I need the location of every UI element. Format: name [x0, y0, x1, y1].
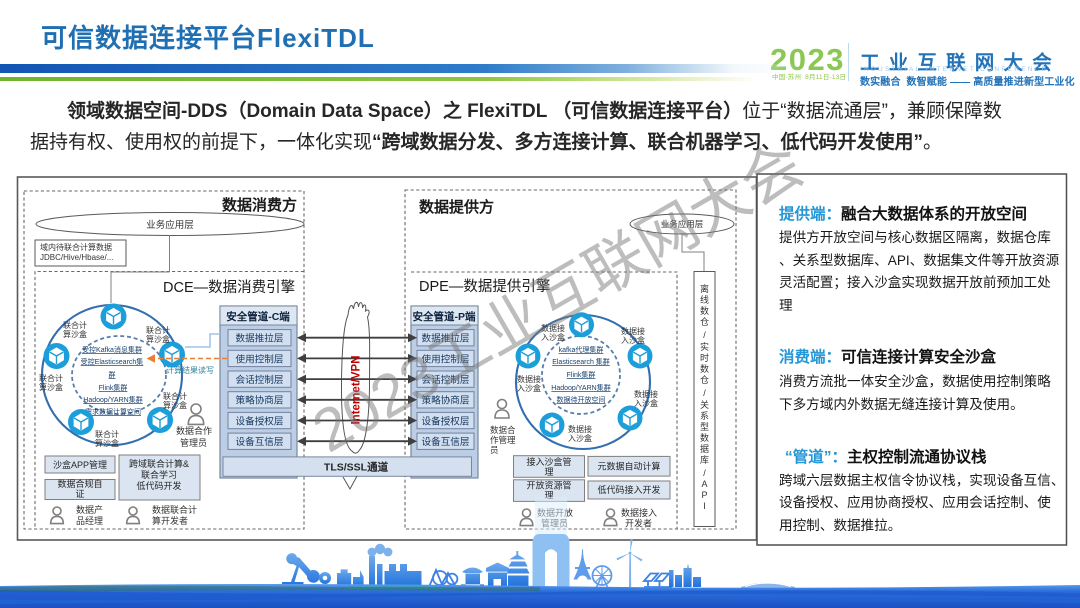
svg-text:跨域联合计算&: 跨域联合计算& [129, 458, 189, 469]
svg-text:入沙盒: 入沙盒 [568, 433, 592, 443]
svg-text:数: 数 [700, 363, 709, 374]
svg-text:数据合规自: 数据合规自 [57, 478, 102, 489]
svg-text:Elasticsearch 集群: Elasticsearch 集群 [552, 357, 610, 366]
svg-text:会话控制层: 会话控制层 [422, 374, 470, 386]
svg-text:会话控制层: 会话控制层 [236, 374, 284, 386]
svg-text:数据接: 数据接 [568, 424, 592, 434]
svg-text:使用控制层: 使用控制层 [236, 353, 284, 365]
svg-text:A: A [701, 479, 707, 489]
svg-text:线: 线 [700, 294, 709, 305]
svg-text:管理员: 管理员 [180, 437, 207, 448]
svg-text:接入沙盒管: 接入沙盒管 [526, 456, 571, 467]
svg-text:设备授权层: 设备授权层 [422, 415, 470, 427]
svg-text:数据提供方: 数据提供方 [419, 198, 494, 216]
svg-text:群: 群 [109, 370, 116, 379]
svg-text:TLS/SSL通道: TLS/SSL通道 [324, 461, 389, 474]
svg-text:时: 时 [700, 352, 709, 363]
svg-text:数据推拉层: 数据推拉层 [236, 333, 284, 345]
svg-text:JDBC/Hive/Hbase/...: JDBC/Hive/Hbase/... [40, 253, 113, 262]
svg-text:品经理: 品经理 [76, 515, 103, 526]
svg-text:受控Elasticsearch集: 受控Elasticsearch集 [81, 357, 144, 366]
svg-text:低代码开发: 低代码开发 [136, 480, 181, 491]
svg-text:Internet/VPN: Internet/VPN [351, 355, 363, 424]
svg-text:联合计: 联合计 [95, 429, 119, 439]
svg-text:受控Kafka消息集群: 受控Kafka消息集群 [82, 345, 142, 354]
svg-text:联合学习: 联合学习 [141, 469, 177, 480]
svg-text:P: P [701, 490, 707, 500]
svg-text:策略协商层: 策略协商层 [422, 395, 470, 407]
svg-text:安全管道-C端: 安全管道-C端 [226, 310, 290, 323]
svg-text:联合计: 联合计 [39, 373, 63, 383]
svg-text:安全管道-P端: 安全管道-P端 [413, 310, 476, 323]
svg-text:设备授权层: 设备授权层 [236, 415, 284, 427]
svg-text:计算结果读写: 计算结果读写 [166, 365, 214, 375]
svg-text:Hadoop/YARN集群: Hadoop/YARN集群 [551, 383, 610, 392]
svg-text:据: 据 [700, 443, 709, 454]
svg-text:数: 数 [700, 305, 709, 316]
svg-text:Flink集群: Flink集群 [99, 383, 128, 392]
svg-text:kafka代理集群: kafka代理集群 [559, 345, 604, 354]
svg-text:数据接入: 数据接入 [621, 507, 657, 518]
svg-text:数据接: 数据接 [634, 389, 658, 399]
svg-text:数据接: 数据接 [621, 326, 645, 336]
svg-text:入沙盒: 入沙盒 [621, 335, 645, 345]
svg-text:算沙盒: 算沙盒 [63, 329, 87, 339]
svg-text:实: 实 [700, 341, 709, 352]
svg-text:算沙盒: 算沙盒 [146, 334, 170, 344]
svg-text:数据接: 数据接 [541, 323, 565, 333]
svg-text:数据待开放空间: 数据待开放空间 [557, 395, 606, 404]
svg-text:仓: 仓 [700, 316, 709, 327]
svg-text:入沙盒: 入沙盒 [541, 332, 565, 342]
svg-text:开放资源管: 开放资源管 [526, 480, 571, 491]
svg-text:数据推拉层: 数据推拉层 [422, 333, 470, 345]
svg-text:开发者: 开发者 [625, 518, 652, 529]
svg-text:作管理: 作管理 [490, 435, 516, 445]
svg-text:仓: 仓 [700, 374, 709, 385]
svg-text:算沙盒: 算沙盒 [163, 400, 187, 410]
svg-text:Hadoop/YARN集群: Hadoop/YARN集群 [83, 395, 142, 404]
svg-text:联合计: 联合计 [63, 320, 87, 330]
svg-text:型: 型 [700, 422, 709, 432]
svg-text:算沙盒: 算沙盒 [39, 382, 63, 392]
svg-text:入沙盒: 入沙盒 [634, 398, 658, 408]
svg-text:数据合作: 数据合作 [176, 425, 212, 436]
svg-text:设备互信层: 设备互信层 [236, 436, 284, 448]
svg-text:数据合: 数据合 [490, 425, 516, 435]
svg-text:沙盒APP管理: 沙盒APP管理 [53, 459, 107, 470]
svg-text:数据消费方: 数据消费方 [222, 196, 297, 214]
svg-text:算开发者: 算开发者 [152, 515, 188, 526]
svg-text:使用控制层: 使用控制层 [422, 353, 470, 365]
svg-text:I: I [703, 501, 706, 511]
svg-text:员: 员 [490, 445, 499, 455]
svg-text:DCE—数据消费引擎: DCE—数据消费引擎 [163, 279, 295, 296]
svg-text:算沙盒: 算沙盒 [95, 438, 119, 448]
svg-text:元数据自动计算: 元数据自动计算 [597, 461, 660, 472]
svg-text:DPE—数据提供引擎: DPE—数据提供引擎 [419, 278, 550, 295]
svg-text:入沙盒: 入沙盒 [517, 383, 541, 393]
svg-text:低代码接入开发: 低代码接入开发 [597, 484, 660, 495]
svg-text:业务应用层: 业务应用层 [661, 219, 704, 229]
svg-text:Flink集群: Flink集群 [567, 370, 596, 379]
svg-text:业务应用层: 业务应用层 [146, 219, 194, 231]
svg-text:策略协商层: 策略协商层 [236, 395, 284, 407]
svg-text:需求数据计算空间: 需求数据计算空间 [85, 407, 141, 416]
svg-text:数据产: 数据产 [76, 504, 103, 515]
svg-text:联合计: 联合计 [163, 391, 187, 401]
svg-text:域内待联合计算数据: 域内待联合计算数据 [40, 242, 112, 252]
svg-text:数: 数 [700, 432, 709, 443]
svg-text:设备互信层: 设备互信层 [422, 436, 470, 448]
svg-text:联合计: 联合计 [146, 325, 170, 335]
svg-text:系: 系 [700, 411, 709, 421]
svg-text:离: 离 [700, 283, 709, 294]
svg-text:关: 关 [700, 399, 709, 410]
svg-text:数据联合计: 数据联合计 [152, 504, 197, 515]
svg-text:库: 库 [700, 454, 709, 465]
svg-text:证: 证 [75, 489, 84, 499]
svg-text:理: 理 [544, 467, 553, 477]
svg-text:数据接: 数据接 [517, 374, 541, 384]
